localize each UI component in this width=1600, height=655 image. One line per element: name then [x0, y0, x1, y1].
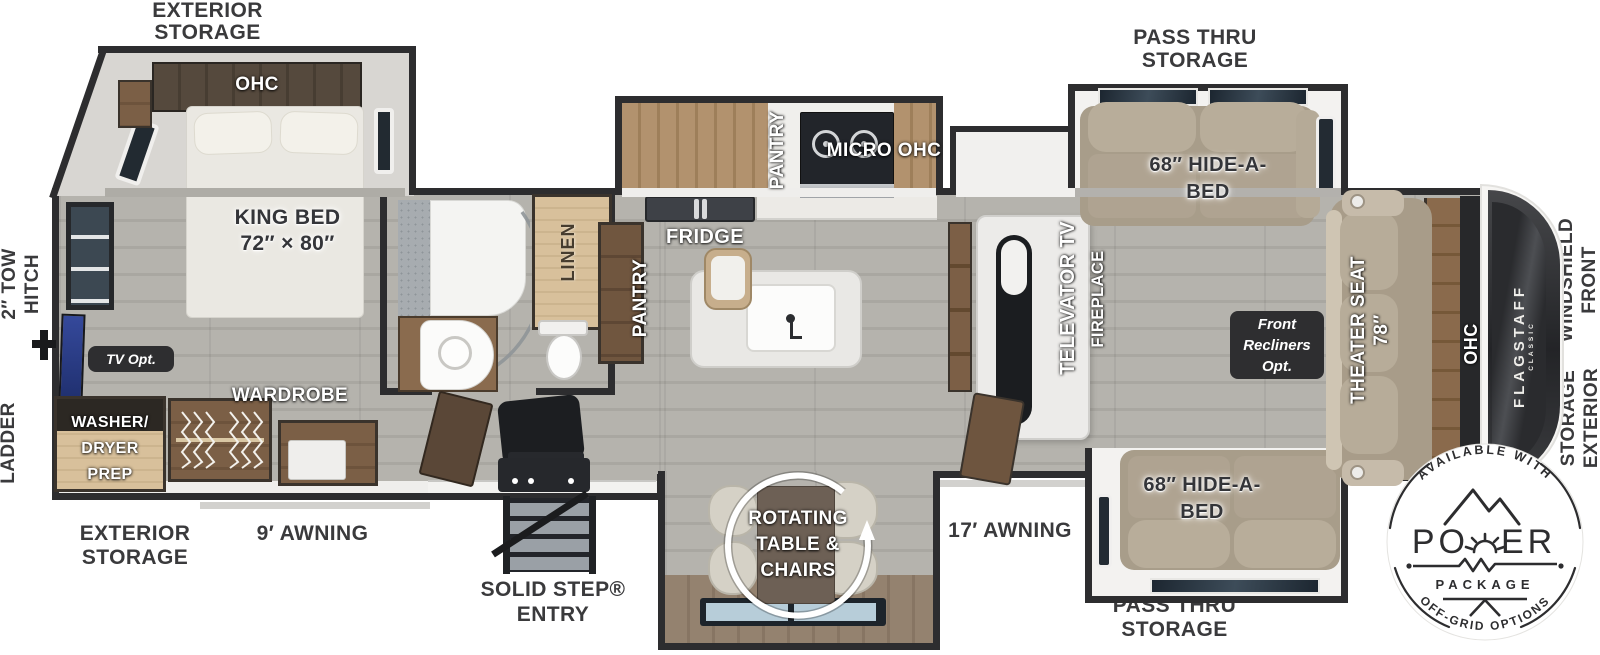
slide-end-window-icon [1096, 494, 1112, 568]
entry-platform-dot [512, 478, 518, 484]
label-pass-thru-top: PASS THRU STORAGE [1105, 26, 1285, 72]
entry-steps-frame [503, 496, 510, 574]
sofa-bottom-back-cushion [1128, 520, 1230, 568]
pantry-slide-shelves [622, 103, 768, 195]
badge-power-left: PO [1412, 523, 1469, 561]
label-tow-hitch: 2″ TOW HITCH [0, 224, 44, 344]
brand-sub: CLASSIC [1528, 261, 1535, 431]
sofa-slide-bottom-wall-left [1085, 448, 1092, 603]
label-line: STORAGE [90, 22, 325, 44]
dinette-wall-right [933, 471, 940, 650]
wardrobe-label: WARDROBE [210, 385, 370, 407]
bathroom-wall-left [380, 192, 387, 395]
bedroom-window-end-icon [374, 108, 394, 174]
king-slide-wall-top [98, 46, 416, 53]
awning-roll-main [935, 480, 1090, 487]
label-line: 68″ HIDE-A- [1118, 472, 1286, 499]
pillow [279, 111, 358, 156]
awning-roll-rear [200, 502, 430, 509]
rear-window-icon [66, 202, 114, 310]
badge-power-right: ER [1501, 523, 1556, 561]
wardrobe-hangers-icon [172, 404, 268, 476]
dresser-appliance [288, 440, 346, 480]
label-line: STORAGE [1082, 618, 1267, 642]
cupholder-icon [1350, 194, 1365, 209]
bedroom-nightstand [118, 80, 152, 128]
micro-ohc-label: MICRO OHC [818, 140, 950, 162]
label-line: DRYER [56, 436, 164, 462]
label-line: SOLID STEP® [453, 577, 653, 602]
entry-platform-dot [528, 478, 534, 484]
bathroom-wall-bottom-b [536, 388, 615, 395]
label-line: PREP [56, 462, 164, 488]
front-recliners-badge: Front Recliners Opt. [1230, 311, 1324, 379]
label-line: WASHER/ [56, 410, 164, 436]
brand-flagstaff: FLAGSTAFF CLASSIC [1511, 261, 1545, 431]
dinette-label: ROTATING TABLE & CHAIRS [737, 506, 859, 584]
televator-tv-pill [1001, 240, 1027, 295]
label-line: STORAGE [1105, 49, 1285, 72]
dinette-wall-left [658, 471, 665, 650]
entry-steps-frame [589, 496, 596, 574]
power-package-badge: AVAILABLE WITH PO ER PACKAGE OFF-GRID OP… [1385, 442, 1585, 642]
theater-seat-label: THEATER SEAT 78″ [1347, 215, 1393, 445]
label-line: ENTRY [453, 602, 653, 627]
label-line: BED [1124, 179, 1292, 206]
sofa-slide-top-wall-left [1068, 84, 1075, 195]
pantry-slide-label: PANTRY [767, 90, 791, 210]
front-ohc-label: OHC [1461, 299, 1483, 389]
label-line: EXTERIOR [35, 522, 235, 546]
label-line: 72″ × 80″ [205, 231, 370, 257]
label-line: ROTATING [737, 506, 859, 532]
sofa-bottom-back-cushion [1234, 520, 1336, 568]
label-line: BED [1118, 499, 1286, 526]
label-line: STORAGE [35, 546, 235, 570]
sofa-slide-top-wall-right [1341, 84, 1348, 195]
linen-label: LINEN [558, 202, 582, 302]
label-line: KING BED [205, 205, 370, 231]
badge-package-text: PACKAGE [1435, 577, 1534, 592]
label-line: FRONT [1578, 205, 1600, 355]
fridge-label: FRIDGE [645, 226, 765, 249]
floorplan: EXTERIOR STORAGE PASS THRU STORAGE PASS … [0, 0, 1600, 655]
tow-hitch-icon [32, 340, 56, 348]
bedroom-tv-icon [58, 314, 85, 405]
faucet-icon [790, 336, 802, 339]
entry-platform-dot [568, 478, 574, 484]
fridge-icon [645, 196, 755, 222]
bath-sink-icon [438, 336, 472, 370]
label-line: EXTERIOR [90, 0, 325, 22]
label-line: THEATER SEAT [1347, 215, 1370, 445]
sofa-slide-bottom-wall-bottom [1085, 596, 1348, 603]
label-line: Front [1230, 314, 1324, 335]
label-awning-9ft: 9′ AWNING [240, 522, 385, 546]
slide-window-icon [1150, 578, 1320, 594]
fireplace-label: FIREPLACE [1089, 224, 1111, 374]
label-line: Opt. [1230, 356, 1324, 377]
tv-opt-badge: TV Opt. [88, 346, 174, 372]
label-line: 2″ TOW [0, 224, 21, 344]
king-bed-label: KING BED 72″ × 80″ [205, 205, 370, 257]
entry-platform [498, 458, 590, 492]
label-line: CHAIRS [737, 558, 859, 584]
hide-a-bed-top-label: 68″ HIDE-A- BED [1124, 152, 1292, 206]
televator-label: TELEVATOR TV [1057, 193, 1083, 403]
label-exterior-storage-bottom: EXTERIOR STORAGE [35, 522, 235, 570]
label-exterior-storage-top: EXTERIOR STORAGE [90, 0, 325, 44]
opening-king-slide [105, 188, 405, 197]
label-solid-step-entry: SOLID STEP® ENTRY [453, 577, 653, 627]
pantry-cabinet-label: PANTRY [630, 243, 654, 353]
entertainment-drawers [948, 222, 972, 392]
fridge-handle [702, 199, 707, 219]
hide-a-bed-bottom-label: 68″ HIDE-A- BED [1118, 472, 1286, 526]
cupholder-icon [1350, 465, 1365, 480]
label-ladder: LADDER [0, 388, 20, 498]
label-line: PASS THRU [1105, 26, 1285, 49]
label-line: 78″ [1370, 215, 1393, 445]
slide-end-window-icon [1316, 116, 1336, 194]
pantry-slide-wall-left [615, 96, 622, 195]
label-line: Recliners [1230, 335, 1324, 356]
king-slide-wall-end [409, 46, 416, 195]
sofa-top-back-cushion [1088, 102, 1196, 152]
faucet-icon [790, 318, 793, 338]
washer-dryer-label: WASHER/ DRYER PREP [56, 410, 164, 488]
label-awning-17ft: 17′ AWNING [935, 519, 1085, 543]
bedroom-ohc-label: OHC [152, 74, 362, 96]
pillow [193, 111, 272, 156]
dinette-wall-bottom [658, 643, 940, 650]
tv-bump-wall-left [950, 126, 956, 195]
island-stool-cushion [711, 256, 745, 300]
fridge-handle [694, 199, 699, 219]
label-line: 68″ HIDE-A- [1124, 152, 1292, 179]
sofa-top-back-cushion [1200, 102, 1308, 152]
toilet-bowl-icon [546, 334, 582, 380]
brand-name: FLAGSTAFF [1511, 261, 1528, 431]
label-line: TABLE & [737, 532, 859, 558]
label-line: HITCH [21, 224, 44, 344]
